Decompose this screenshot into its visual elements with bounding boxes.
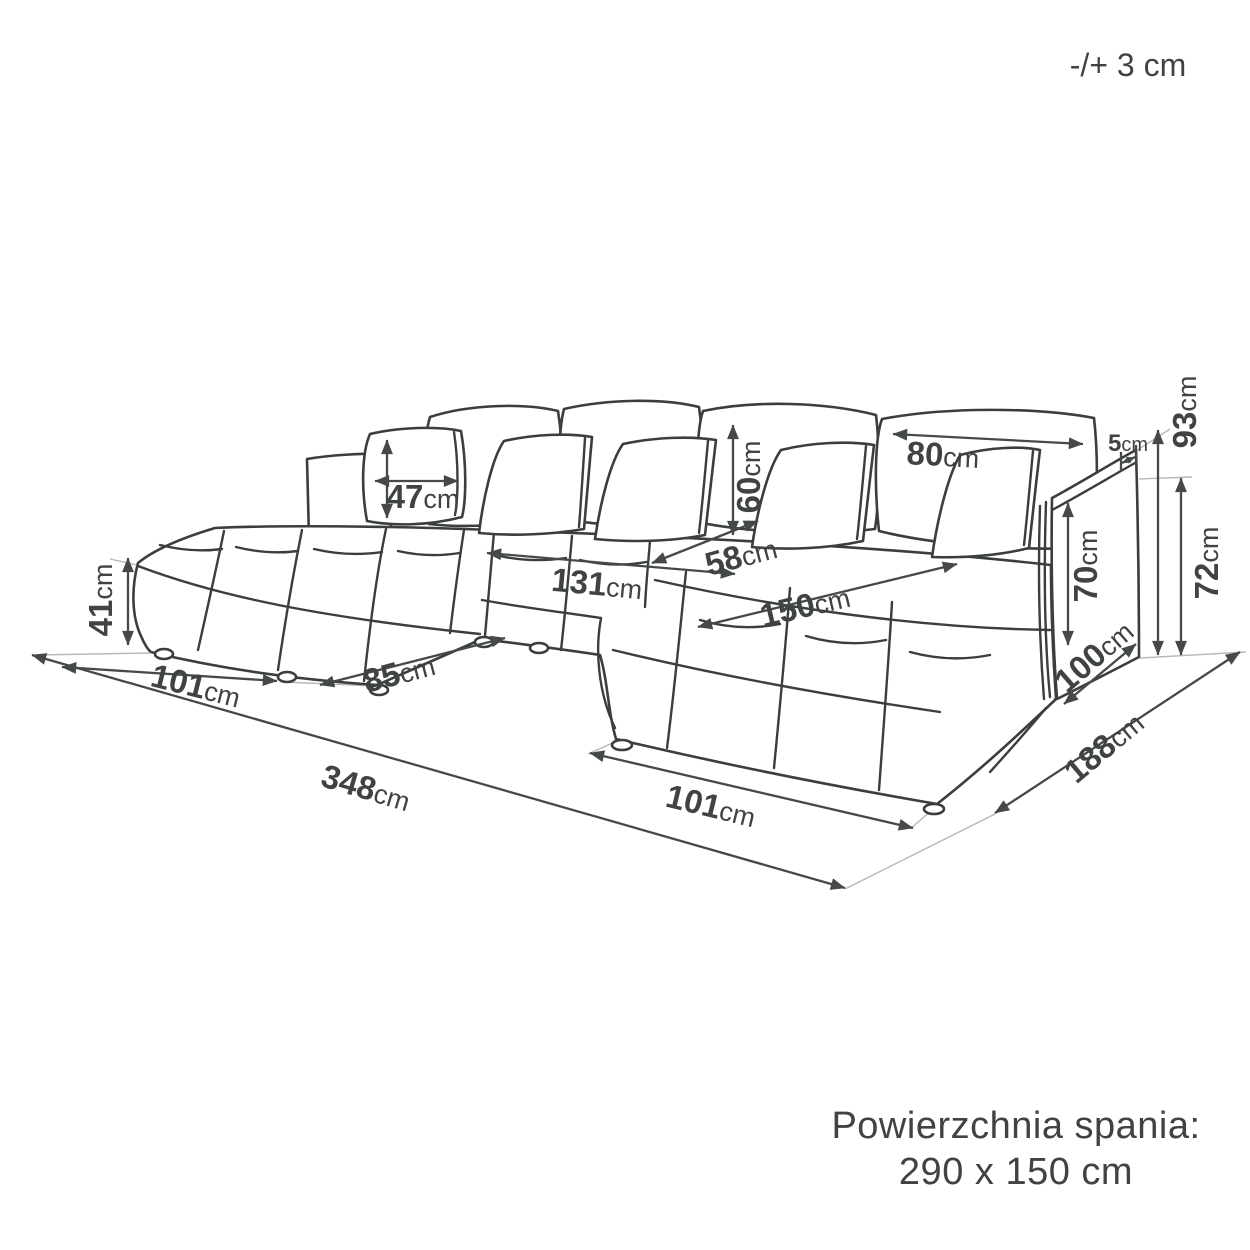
sofa-dimension-diagram: 41cm 101cm 85cm 348cm 101cm 188cm 150cm … <box>0 0 1250 1250</box>
dim-label-right-chaise-width: 101cm <box>663 777 760 834</box>
dim-label-seat-height: 41cm <box>82 564 119 637</box>
dim-label-armrest-thickness: 5cm <box>1108 430 1148 457</box>
tolerance-note: -/+ 3 cm <box>1070 47 1186 83</box>
dim-label-small-pillow: 47cm <box>387 478 460 515</box>
dim-label-total-height: 93cm <box>1166 376 1203 449</box>
sofa-drawing <box>133 401 1139 814</box>
sleeping-area-note: Powierzchnia spania: 290 x 150 cm <box>831 1105 1200 1193</box>
dim-label-backrest-height: 72cm <box>1188 527 1225 600</box>
dim-label-total-width: 348cm <box>317 757 415 818</box>
dim-label-armrest-inner-height: 70cm <box>1067 530 1104 603</box>
sleeping-area-size: 290 x 150 cm <box>899 1151 1133 1193</box>
dim-label-back-cushion-height: 60cm <box>730 441 767 514</box>
sleeping-area-label: Powierzchnia spania: <box>831 1105 1200 1147</box>
dim-label-total-depth: 188cm <box>1057 703 1151 790</box>
